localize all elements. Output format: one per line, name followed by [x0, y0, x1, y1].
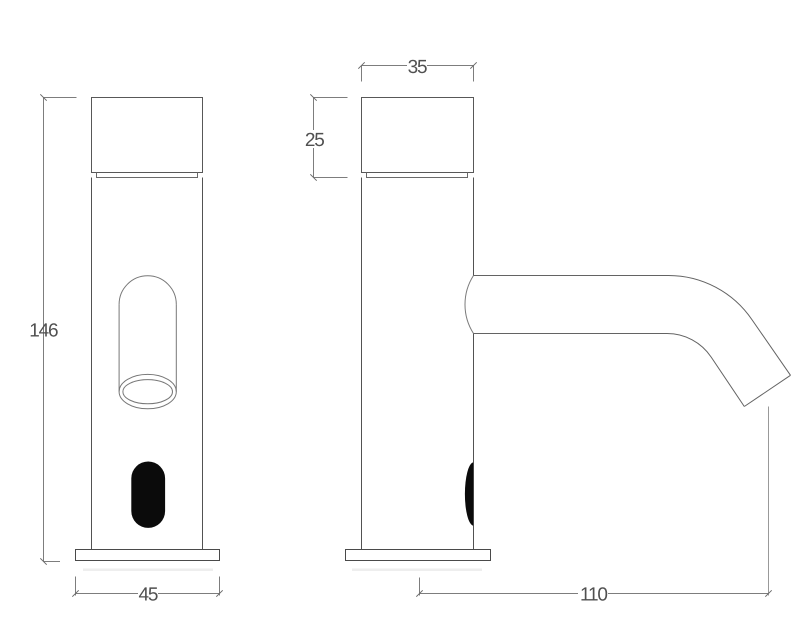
svg-text:25: 25	[305, 130, 324, 151]
svg-text:35: 35	[408, 57, 427, 78]
svg-text:110: 110	[580, 585, 607, 606]
svg-text:146: 146	[29, 321, 58, 342]
svg-text:45: 45	[139, 585, 158, 606]
